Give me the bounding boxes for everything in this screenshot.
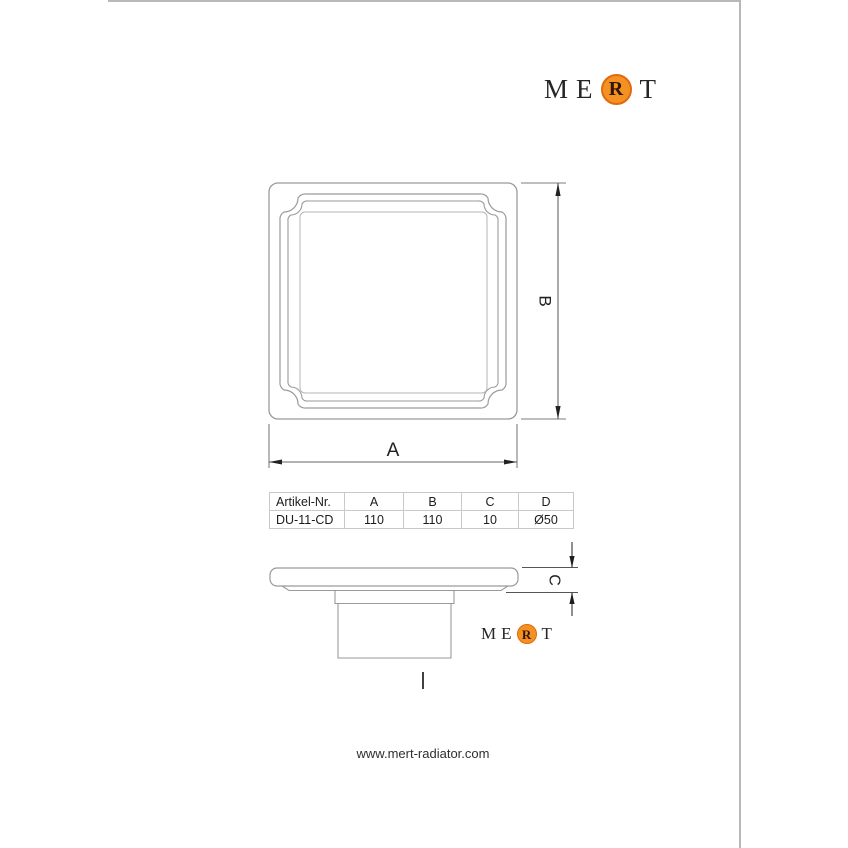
dim-b-arrow-down-icon [555,406,560,419]
dimension-c: C [506,542,578,616]
cell-a: 110 [345,511,404,529]
drain-outer-frame [269,183,517,419]
dim-c-label: C [546,574,563,586]
spec-table-header-row: Artikel-Nr. A B C D [270,493,574,511]
dim-a-arrow-left-icon [269,460,282,465]
dimension-b: B [521,183,566,419]
brand-small-circle-icon: R [517,624,537,644]
spec-table-data-row: DU-11-CD 110 110 10 Ø50 [270,511,574,529]
cell-artikel-nr: DU-11-CD [270,511,345,529]
dimension-a: A [269,424,517,468]
drain-body [338,604,451,659]
dim-b-arrow-up-icon [555,183,560,196]
logo-small-letter-e: E [501,624,511,644]
logo-small-letter-m: M [481,624,496,644]
logo-small-letter-r: R [522,628,531,641]
drawing-sheet: M E R T B A [0,0,848,848]
grate-inner-outline [288,201,498,401]
grate-outer-outline [280,194,506,408]
dim-b-label: B [536,295,555,306]
dim-c-arrow-up-icon [569,593,574,605]
spec-table: Artikel-Nr. A B C D DU-11-CD 110 110 10 … [269,492,574,529]
plate-underside-taper [282,586,508,591]
technical-drawing: B A C [0,0,848,848]
dim-c-arrow-down-icon [569,556,574,568]
cell-d: Ø50 [519,511,574,529]
logo-small-letter-t: T [542,624,552,644]
header-artikel-nr: Artikel-Nr. [270,493,345,511]
header-d: D [519,493,574,511]
brand-logo-small: M E R T [481,622,552,646]
header-b: B [404,493,462,511]
drain-plate-side [270,568,518,586]
dim-a-arrow-right-icon [504,460,517,465]
drain-neck [335,591,454,604]
header-c: C [462,493,519,511]
dim-a-label: A [387,440,400,461]
header-a: A [345,493,404,511]
website-url: www.mert-radiator.com [328,746,518,761]
cell-c: 10 [462,511,519,529]
cell-b: 110 [404,511,462,529]
tile-inset-outline [300,212,487,393]
top-view [269,183,517,419]
